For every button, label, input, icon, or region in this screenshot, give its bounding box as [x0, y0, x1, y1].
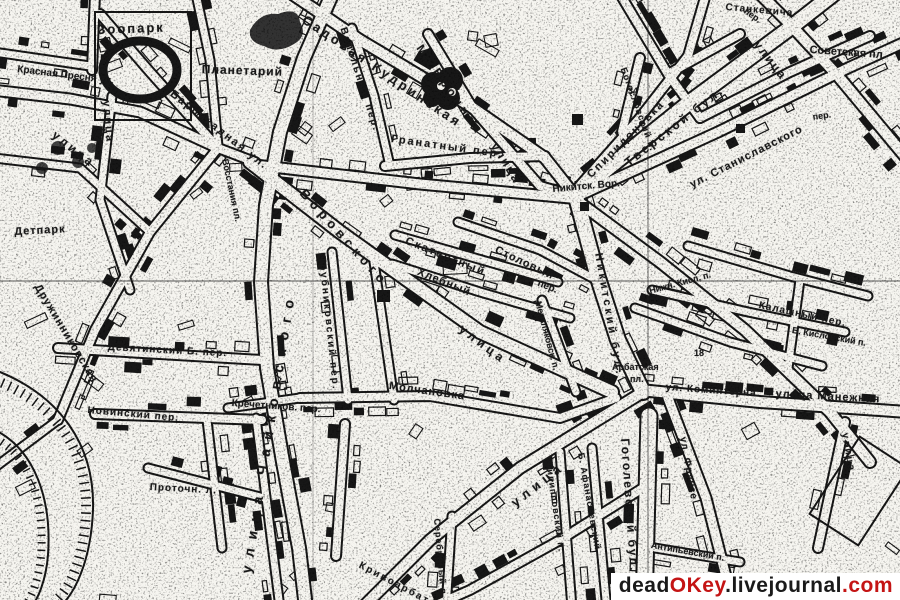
street-label: улица — [839, 432, 857, 473]
street-label: пл. — [630, 374, 644, 384]
street-label: Баррикадная ул. — [168, 88, 271, 172]
scanned-map-image: ЗоопаркПланетарийКрасная Пресня ул.улица… — [0, 0, 900, 600]
street-label: улица — [751, 38, 790, 83]
street-label: Красная Пресня ул. — [17, 64, 115, 87]
street-label: ул. Коминтерна — [665, 382, 757, 399]
street-label: Зоопарк — [97, 20, 165, 37]
street-label: Детпарк — [14, 223, 66, 238]
street-label: ул. Фрунзе — [677, 436, 699, 501]
street-label: Молчановка — [388, 380, 466, 403]
watermark-segment: OKey — [670, 574, 725, 597]
street-label: Советская пл. — [809, 44, 886, 61]
watermark-segment: .com — [842, 574, 893, 597]
street-label: Гранатный пер. — [390, 133, 504, 161]
street-label: 34 — [628, 86, 638, 96]
street-label: улица — [49, 128, 98, 170]
street-label: Гоголевский бул. — [618, 438, 641, 573]
street-label: Дружинниковская — [32, 282, 100, 385]
street-labels-layer: ЗоопаркПланетарийКрасная Пресня ул.улица… — [0, 0, 900, 600]
street-label: Нижн. Кисл. п. — [648, 270, 712, 296]
street-label: улица Манежная — [775, 388, 880, 405]
watermark-segment: .livejournal — [725, 574, 842, 597]
street-label: Мерзляковск. п. — [533, 300, 561, 371]
street-label: улица — [457, 322, 510, 367]
street-label: Серебряный п. — [432, 518, 449, 599]
street-label: Б. Кисловский п. — [791, 325, 867, 348]
street-label: Планетарий — [202, 62, 284, 79]
street-label: 7 — [100, 128, 106, 139]
street-label: Проточн. л. — [149, 482, 217, 497]
street-label: Столовый — [493, 244, 556, 282]
street-label: Воровского — [297, 186, 392, 289]
street-label: пер. — [812, 109, 832, 121]
street-label: Антипьевский п. — [650, 540, 725, 563]
street-label: Девятинский Б. пер. — [107, 342, 227, 359]
watermark: deadOKey.livejournal.com — [611, 573, 900, 600]
street-label: Никитск. Вор. — [552, 178, 620, 195]
street-label: Калашный пер. — [758, 300, 847, 329]
watermark-segment: dead — [619, 574, 670, 597]
street-label: Восстания пл. — [220, 158, 243, 222]
street-label: 18 — [694, 348, 704, 358]
street-label: Арбатская — [612, 362, 659, 372]
street-label: Филипповский п. — [544, 460, 567, 553]
street-label: Вспольный пер. — [338, 26, 382, 133]
street-label: Б. Афанасьевский — [576, 452, 603, 551]
street-label: ул. Станиславского — [688, 123, 805, 190]
street-label: Никитский бул. — [592, 252, 626, 377]
street-label: Новинский пер. — [87, 405, 179, 424]
street-label: улица Чайковского — [238, 290, 299, 575]
street-label: Трубниковский пер. — [316, 256, 341, 391]
street-label: Скатертный — [404, 235, 488, 278]
